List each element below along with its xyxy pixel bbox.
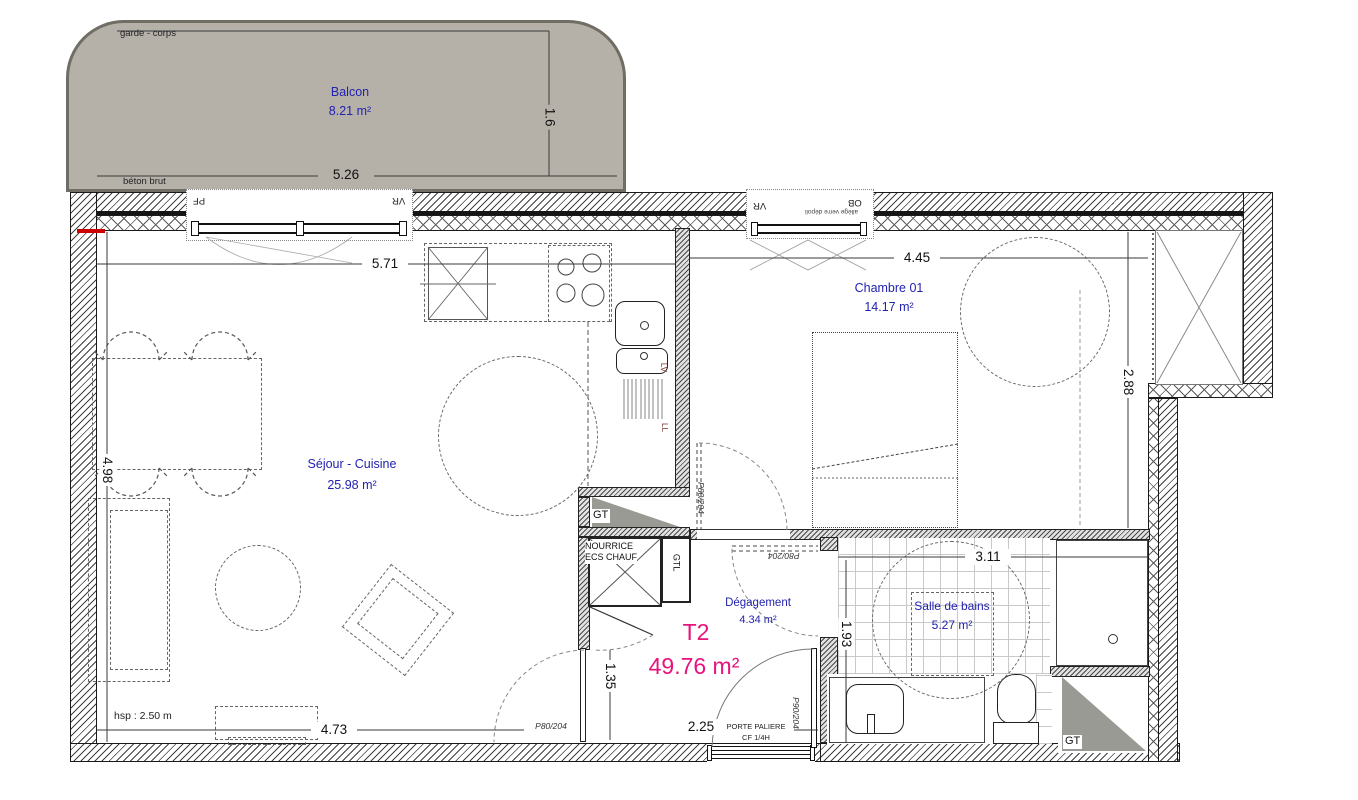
bedroom-door-threshold bbox=[697, 529, 790, 540]
wall-gt-top bbox=[578, 487, 690, 497]
entrance-rail-inner bbox=[711, 754, 811, 759]
entrance-door-leaf bbox=[811, 648, 817, 748]
wall-right-top bbox=[1243, 192, 1273, 398]
bedroom-window-glass bbox=[753, 224, 867, 234]
entrance-door-label: P90/204 bbox=[789, 682, 803, 744]
dim-entry-width: 2.25 bbox=[679, 719, 723, 735]
dim-bedroom-height: 2.88 bbox=[1117, 362, 1139, 402]
bedroom-door-label: P80/204 bbox=[694, 468, 708, 528]
bedroom-area: 14.17 m² bbox=[843, 301, 935, 315]
washer-label: LL bbox=[655, 418, 673, 436]
dishwasher-label: LV bbox=[655, 358, 673, 376]
dim-living-width-bottom: 4.73 bbox=[311, 722, 357, 738]
tv-set bbox=[228, 737, 306, 745]
ceiling-height-note: hsp : 2.50 m bbox=[114, 710, 172, 722]
window-label-vr-bedroom: VR bbox=[750, 199, 770, 212]
living-door-label: P80/204 bbox=[524, 721, 578, 731]
bedroom-name: Chambre 01 bbox=[843, 282, 935, 296]
dim-hall-door: 1.35 bbox=[599, 657, 621, 695]
sink-2-drain bbox=[640, 352, 648, 360]
unit-area: 49.76 m² bbox=[638, 655, 750, 678]
living-window-cap-mid bbox=[296, 221, 304, 236]
bedroom-rug bbox=[960, 237, 1110, 387]
dim-balcony-width: 5.26 bbox=[318, 167, 374, 183]
gt-hall-label: GT bbox=[591, 509, 610, 523]
shower-tray bbox=[1056, 540, 1148, 666]
red-mark bbox=[77, 229, 105, 233]
dim-bedroom-width: 4.45 bbox=[894, 250, 940, 266]
bathroom-door-label: P80/204 bbox=[752, 549, 816, 562]
living-rug bbox=[438, 356, 598, 516]
wall-right-mid-insulation bbox=[1148, 398, 1159, 762]
living-area: 25.98 m² bbox=[282, 479, 422, 493]
window-label-pf: PF bbox=[189, 194, 209, 207]
bedroom-window-cap-right bbox=[860, 222, 867, 236]
kitchen-hood bbox=[428, 247, 488, 320]
side-table bbox=[215, 545, 301, 631]
toilet-tank bbox=[993, 722, 1039, 744]
sink-1-drain bbox=[640, 321, 649, 330]
concrete-note: béton brut bbox=[123, 176, 166, 187]
washbasin bbox=[846, 684, 904, 734]
bed bbox=[812, 332, 958, 528]
washbasin-faucet bbox=[867, 714, 875, 734]
dim-balcony-depth: 1.6 bbox=[538, 97, 560, 137]
bedroom-window-cap-left bbox=[751, 222, 758, 236]
dim-living-height: 4.98 bbox=[96, 450, 118, 490]
guardrail-note: garde - corps bbox=[120, 28, 176, 39]
gtl-label: GTL bbox=[664, 549, 688, 577]
duct-shaft bbox=[1155, 230, 1243, 385]
living-door-leaf bbox=[580, 648, 586, 742]
dim-bathroom-width: 3.11 bbox=[965, 549, 1011, 565]
armchair bbox=[342, 564, 454, 676]
tv-stand bbox=[215, 706, 318, 740]
wall-gt-bottom bbox=[578, 527, 690, 537]
window-note-frosted: allège verre dépoli bbox=[793, 206, 871, 216]
hall-area: 4.34 m² bbox=[712, 614, 804, 626]
wall-shower-south bbox=[1050, 666, 1150, 677]
living-window-cap-left bbox=[191, 221, 199, 236]
entrance-type-label: PORTE PALIERE CF 1/4H bbox=[718, 722, 794, 743]
shower-drain bbox=[1108, 634, 1118, 644]
balcony-area: 8.21 m² bbox=[285, 105, 415, 119]
hall-name: Dégagement bbox=[712, 597, 804, 610]
armchair-seat bbox=[357, 578, 438, 659]
window-label-vr-living: VR bbox=[389, 194, 409, 207]
balcony-name: Balcon bbox=[285, 86, 415, 100]
wall-gt-left bbox=[578, 497, 590, 527]
floor-plan: garde - corps Balcon 8.21 m² béton brut … bbox=[0, 0, 1358, 800]
living-name: Séjour - Cuisine bbox=[282, 458, 422, 472]
gt-bath-label: GT bbox=[1063, 735, 1082, 749]
wall-shaft-bottom bbox=[1148, 383, 1273, 398]
bathroom-area: 5.27 m² bbox=[906, 619, 998, 632]
toilet-bowl bbox=[997, 674, 1036, 724]
wall-kitchen-bedroom bbox=[675, 228, 690, 488]
sofa-seat bbox=[110, 510, 168, 670]
unit-type: T2 bbox=[669, 621, 723, 644]
bathroom-name: Salle de bains bbox=[906, 600, 998, 613]
dim-living-width: 5.71 bbox=[362, 256, 408, 272]
dim-bathroom-height: 1.93 bbox=[835, 615, 857, 653]
entrance-rail-outer bbox=[711, 746, 811, 751]
wall-bathroom-west-upper bbox=[820, 537, 838, 551]
cooktop bbox=[548, 245, 610, 322]
entrance-cap-left bbox=[707, 745, 712, 761]
manifold-label: NOURRICE ECS CHAUF bbox=[585, 541, 637, 564]
living-window-cap-right bbox=[399, 221, 407, 236]
